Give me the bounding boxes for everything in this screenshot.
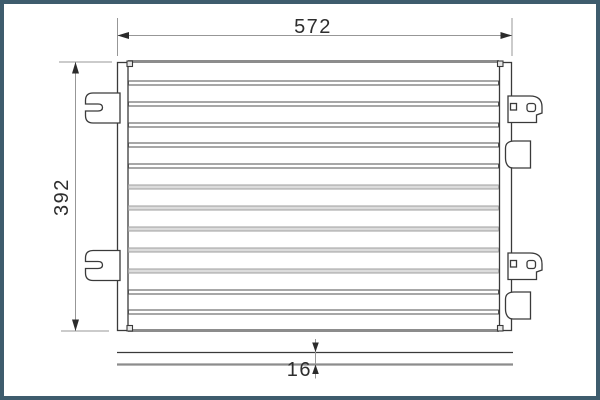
mounting-bracket-upper-left [86, 93, 121, 123]
mounting-bracket-lower-left [86, 251, 121, 281]
corner-block-bottom-right [498, 326, 504, 332]
condenser-dimension-diagram: 572 392 16 [0, 0, 600, 400]
arrowhead-left-icon [118, 32, 130, 39]
core-tube-row [129, 290, 499, 294]
core-tube-row [129, 81, 499, 85]
depth-dimension-label: 16 [287, 359, 312, 381]
mounting-clip-upper-right [506, 141, 531, 168]
corner-block-bottom-left [127, 326, 133, 332]
mounting-bracket-upper-right [508, 96, 542, 123]
bracket-plate [508, 253, 542, 280]
core-tube-row [129, 227, 499, 231]
bracket-plate [508, 96, 542, 123]
core-tubes [129, 81, 499, 314]
core-tube-row [129, 143, 499, 147]
arrowhead-up-icon [312, 365, 319, 375]
height-dimension-label: 392 [51, 178, 73, 216]
mounting-bracket-lower-right [508, 253, 542, 280]
core-tube-row [129, 310, 499, 314]
core-tube-row [129, 123, 499, 127]
technical-drawing-page: 572 392 16 [0, 0, 600, 400]
arrowhead-right-icon [501, 32, 513, 39]
arrowhead-down-icon [312, 343, 319, 353]
core-tube-row [129, 185, 499, 189]
corner-block-top-right [498, 61, 504, 67]
dimension-width: 572 [118, 16, 513, 56]
core-tube-row [129, 248, 499, 252]
front-view [86, 61, 543, 331]
core-tube-row [129, 102, 499, 106]
dimension-depth: 16 [287, 339, 319, 381]
core-tube-row [129, 269, 499, 273]
mounting-clip-lower-right [506, 292, 531, 319]
core-tube-row [129, 164, 499, 168]
core-tube-row [129, 206, 499, 210]
corner-block-top-left [127, 61, 133, 67]
arrowhead-down-icon [72, 320, 79, 332]
width-dimension-label: 572 [294, 16, 332, 38]
arrowhead-up-icon [72, 62, 79, 74]
